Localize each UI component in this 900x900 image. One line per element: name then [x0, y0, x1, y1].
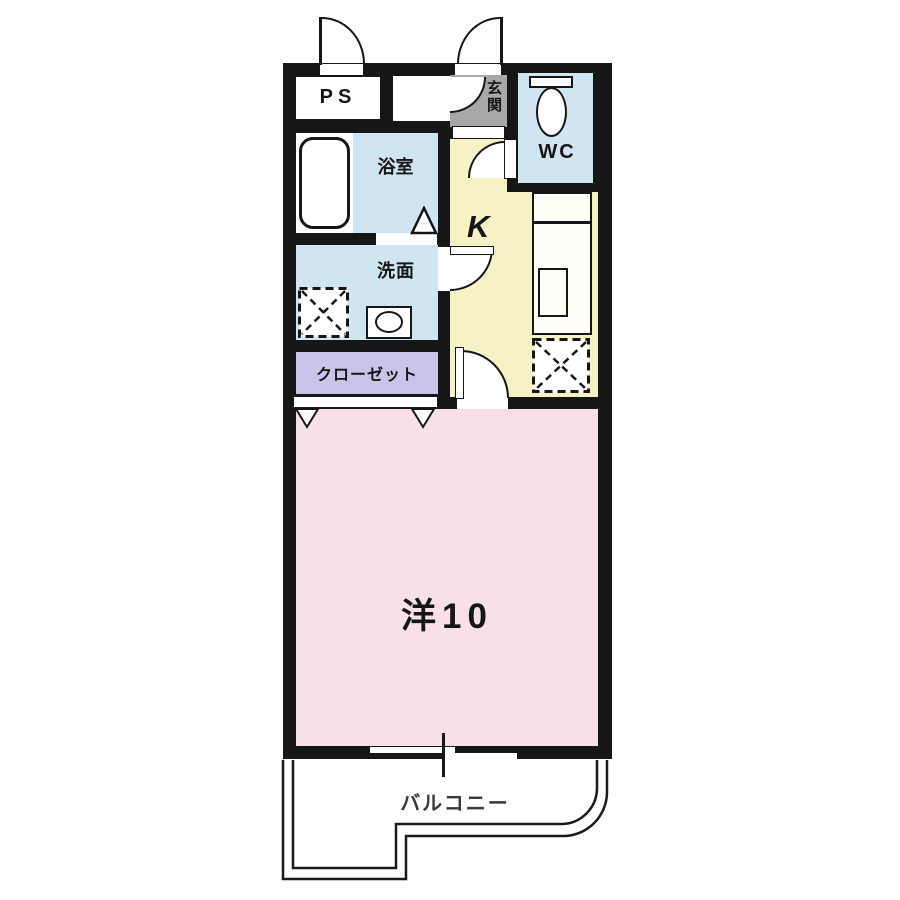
closet-label: クローゼット [296, 361, 438, 385]
wash-basin-bowl [375, 311, 403, 333]
kitchen-door-leaf [455, 347, 464, 399]
closet-door-notch-left [295, 408, 319, 429]
kitchen-label: K [467, 209, 489, 245]
closet-sliding-door [293, 396, 438, 408]
entry-door-arc [457, 17, 500, 64]
entrance-label: 玄関 [483, 80, 504, 114]
entry-door-leaf [500, 17, 503, 65]
kitchen-counter-divider [532, 221, 592, 224]
refrigerator-space [532, 338, 590, 393]
bathroom-door-marker [410, 206, 438, 235]
room-western [296, 409, 598, 746]
washroom-door-leaf [450, 246, 494, 255]
balcony-railing [275, 755, 620, 890]
left-exterior-door-threshold [320, 64, 363, 75]
floor-plan: PS 玄関 WC 浴室 K 洗面 クローゼット 洋10 バルコニー [0, 0, 900, 900]
entrance-step [452, 126, 505, 139]
washroom-label: 洗面 [346, 257, 446, 283]
toilet-bowl [536, 87, 567, 137]
wc-label: WC [527, 141, 587, 164]
bathroom-label: 浴室 [353, 153, 438, 179]
western-room-label: 洋10 [296, 588, 598, 639]
closet-door-notch-right [411, 408, 435, 429]
entrance-side-opening [440, 76, 450, 112]
left-exterior-door-leaf [319, 17, 322, 65]
kitchen-sink [538, 268, 568, 317]
pipe-space-label: PS [293, 86, 383, 109]
left-exterior-door-arc [322, 17, 365, 64]
bathtub [299, 137, 350, 229]
wc-door-leaf [504, 139, 517, 179]
balcony-label: バルコニー [365, 787, 545, 816]
kitchen-door-opening [457, 397, 508, 409]
washing-machine-space [298, 287, 349, 338]
entry-door-threshold [455, 64, 501, 75]
